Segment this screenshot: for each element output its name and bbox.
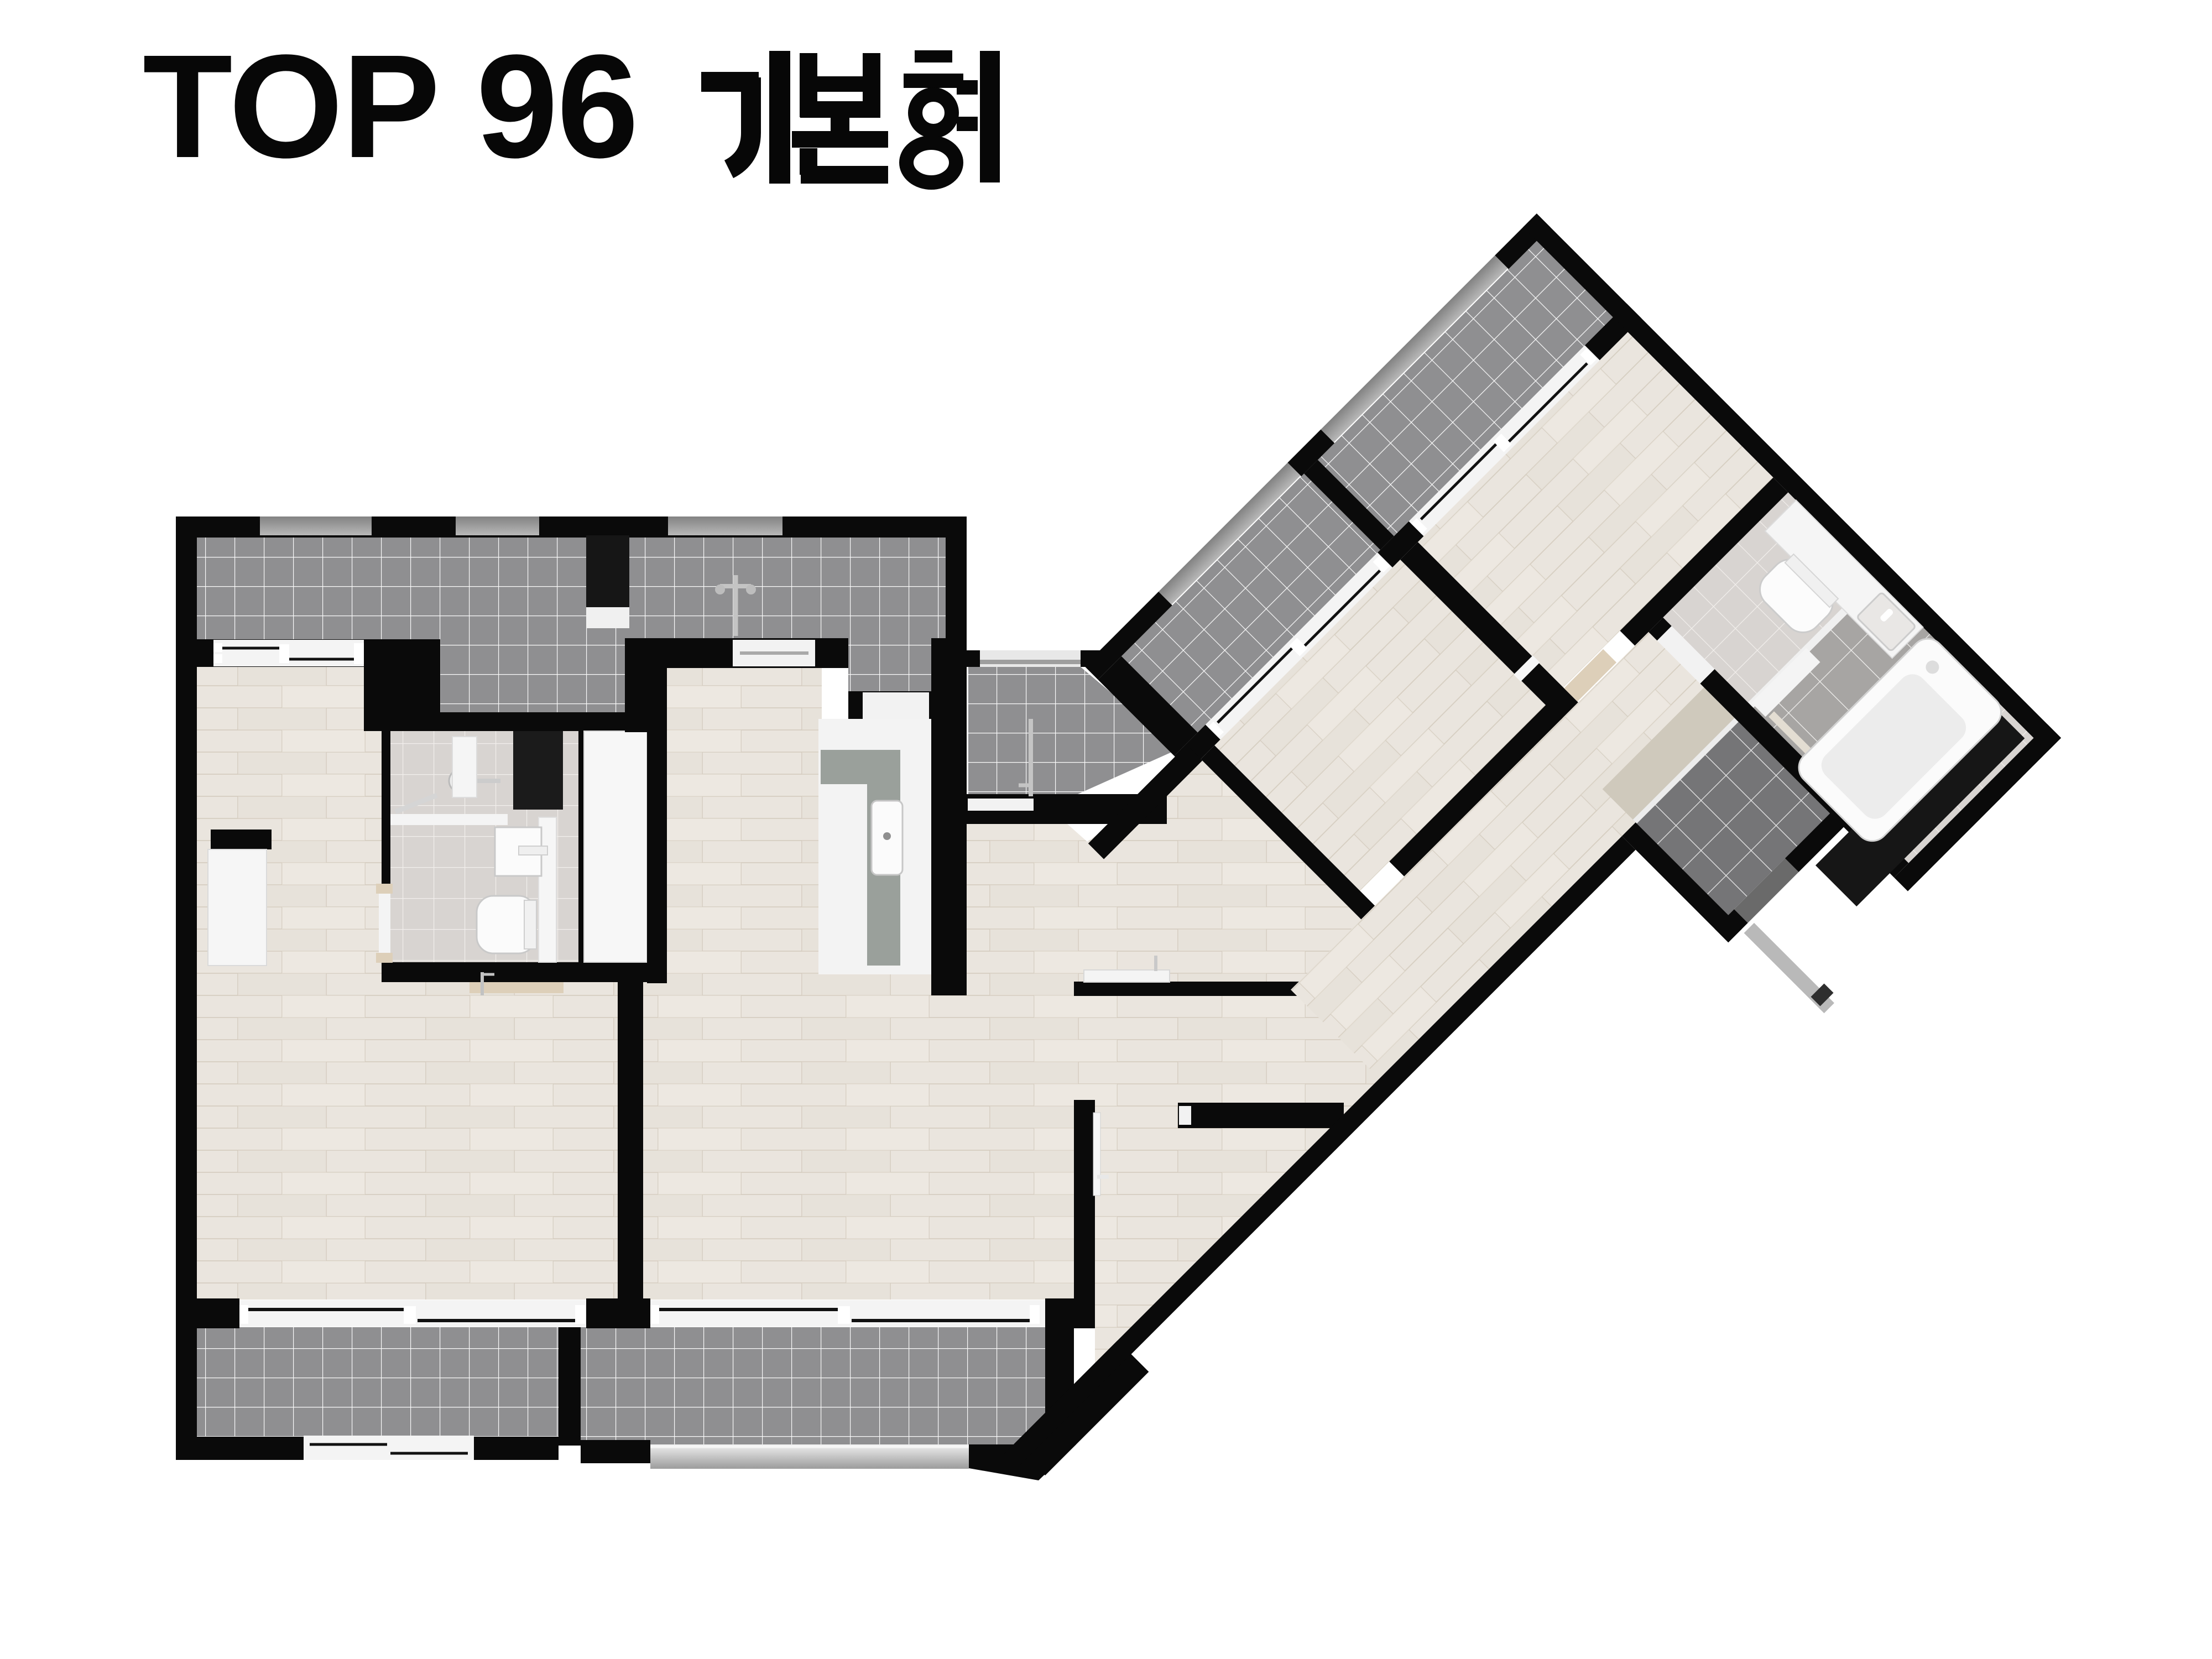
svg-text:TOP 96: TOP 96 — [143, 24, 638, 189]
